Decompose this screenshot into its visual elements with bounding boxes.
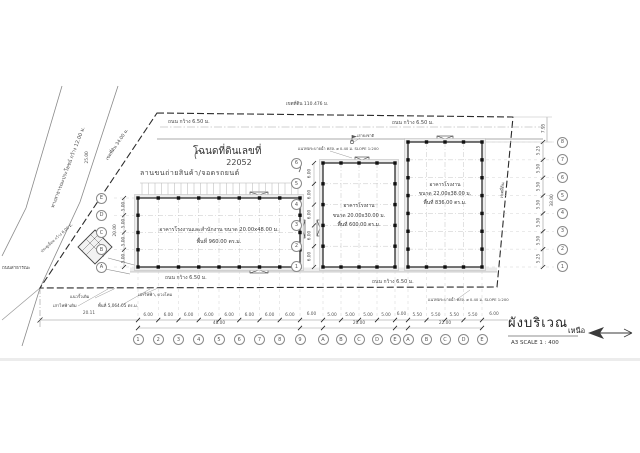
building1-line1: อาคารโรงงานและสำนักงาน ขนาด 20.00x48.00 … <box>138 226 300 234</box>
dim-label: 6.00 <box>143 313 153 318</box>
grid-bubble: D <box>96 210 107 221</box>
grid-bubbles-bottom-main: 123456789 <box>133 334 306 345</box>
lamp-posts-label: เสาไฟฟ้า, ดวงโคม <box>138 293 172 298</box>
dim-label: 6.00 <box>307 231 312 241</box>
boundary-top-label: เขตที่ดิน 110.476 ม. <box>286 103 328 108</box>
grid-bubble: 1 <box>291 261 302 272</box>
dim-label: 5.00 <box>345 313 355 318</box>
dim-label: 5.50 <box>536 164 541 174</box>
deed-title: โฉนดที่ดินเลขที่ <box>193 146 261 157</box>
site-area-label: พื้นที่ 5,064.05 ตร.ม. <box>98 304 138 309</box>
grid-bubble: E <box>390 334 401 345</box>
grid-bubble: 8 <box>274 334 285 345</box>
grid-bubble: D <box>372 334 383 345</box>
dim-label: 6.00 <box>265 313 275 318</box>
grid-bubble: A <box>96 262 107 273</box>
grid-bubble: 1 <box>133 334 144 345</box>
grid-bubble: 5 <box>214 334 225 345</box>
building3-line3: พื้นที่ 836.00 ตร.ม. <box>408 199 482 208</box>
plan-scale: A3 SCALE 1 : 400 <box>511 340 559 346</box>
grid-bubble: 6 <box>557 172 568 183</box>
grid-bubble: B <box>96 244 107 255</box>
grid-bubble: 9 <box>295 334 306 345</box>
grid-bubble: 5 <box>291 178 302 189</box>
grid-bubble: C <box>96 227 107 238</box>
dim-row-mid: 5.005.005.005.00 <box>323 313 395 318</box>
dim-b1-side-total: 20.00 <box>114 224 119 236</box>
dim-label: 5.00 <box>121 236 126 246</box>
dim-gap2: 6.00 <box>395 313 408 318</box>
road-width-label: ถนน กว้าง 6.50 ม. <box>372 280 414 286</box>
grid-bubble: 3 <box>173 334 184 345</box>
building1-line2: พื้นที่ 960.00 ตร.ม. <box>138 238 300 246</box>
dim-col-b1-left: 5.005.005.005.00 <box>119 198 127 267</box>
dim-label: 5.50 <box>536 200 541 210</box>
grid-bubbles-mid-left: 654321 <box>291 158 302 273</box>
drain-label: แนวท่อระบายน้ำ คสล. ø 0.40 ม. SLOPE 1:20… <box>298 147 379 151</box>
dim-label: 5.00 <box>381 313 391 318</box>
dim-label: 6.00 <box>307 169 312 179</box>
dim-label: 5.25 <box>536 253 541 263</box>
building2-label: อาคารโรงงาน ขนาด 20.00x30.00 ม. พื้นที่ … <box>323 202 395 231</box>
building2-line1: อาคารโรงงาน <box>323 202 395 212</box>
grid-bubble: 6 <box>234 334 245 345</box>
grid-bubble: 7 <box>254 334 265 345</box>
public-road-short-label: ถนนสาธารณะ <box>2 267 30 272</box>
road-width-label: ถนน กว้าง 6.50 ม. <box>168 120 210 126</box>
dim-label: 6.00 <box>307 210 312 220</box>
grid-bubble: 2 <box>291 241 302 252</box>
yard-label: ลานขนถ่ายสินค้า/จอดรถยนต์ <box>140 170 240 178</box>
grid-bubble: 2 <box>557 244 568 255</box>
dim-total-main: 48.00 <box>138 322 300 327</box>
dim-label: 5.00 <box>327 313 337 318</box>
fence-label: แนวรั้วเดิม <box>70 295 89 300</box>
grid-bubble: 4 <box>193 334 204 345</box>
dim-label: 5.50 <box>536 182 541 192</box>
dim-left-boundary: 25.00 <box>86 151 91 163</box>
grid-bubble: C <box>440 334 451 345</box>
grid-bubble: 3 <box>557 226 568 237</box>
grid-bubbles-bottom-right: ABCDE <box>403 334 488 345</box>
dim-label: 5.25 <box>536 146 541 156</box>
building3-label: อาคารโรงงาน ขนาด 22.00x38.00 ม. พื้นที่ … <box>408 181 482 208</box>
dim-label: 5.50 <box>536 235 541 245</box>
dim-label: 6.00 <box>224 313 234 318</box>
grid-bubbles-bottom-mid: ABCDE <box>318 334 401 345</box>
dim-right-total: 38.00 <box>551 194 556 206</box>
flag-pole-label: เสาธงชาติ <box>357 134 374 138</box>
grid-bubble: B <box>336 334 347 345</box>
north-arrow-icon <box>588 327 632 339</box>
dim-label: 6.00 <box>184 313 194 318</box>
dim-label: 6.00 <box>285 313 295 318</box>
leader-line <box>95 289 115 299</box>
drain-label: แนวท่อระบายน้ำ คสล. ø 0.40 ม. SLOPE 1:20… <box>428 298 509 302</box>
site-plan-sheet: โฉนดที่ดินเลขที่ 22052 ลานขนถ่ายสินค้า/จ… <box>0 0 640 453</box>
dim-label: 6.00 <box>307 252 312 262</box>
grid-bubble: A <box>318 334 329 345</box>
dim-label: 5.00 <box>121 219 126 229</box>
plan-title: ผังบริเวณ <box>508 317 568 331</box>
building3-line1: อาคารโรงงาน <box>408 181 482 190</box>
building2-line2: ขนาด 20.00x30.00 ม. <box>323 212 395 222</box>
grid-bubble: 3 <box>291 220 302 231</box>
grid-bubble: 4 <box>557 208 568 219</box>
dim-row-main: 6.006.006.006.006.006.006.006.00 <box>138 313 300 318</box>
dim-gap3: 6.00 <box>482 313 506 318</box>
grid-bubbles-right: 87654321 <box>557 137 568 273</box>
dim-label: 5.00 <box>121 254 126 264</box>
building3-line2: ขนาด 22.00x38.00 ม. <box>408 190 482 199</box>
dim-label: 6.00 <box>307 189 312 199</box>
dim-gap1: 6.00 <box>300 313 323 318</box>
leader-line <box>354 138 360 142</box>
dim-label: 6.00 <box>204 313 214 318</box>
dim-row-right: 5.505.505.505.50 <box>408 313 482 318</box>
grid-bubble: 2 <box>153 334 164 345</box>
road-width-label: ถนน กว้าง 6.50 ม. <box>165 276 207 282</box>
building2-line3: พื้นที่ 600.00 ตร.ม. <box>323 221 395 231</box>
deed-number: 22052 <box>193 159 285 168</box>
dim-label: 5.50 <box>431 313 441 318</box>
grid-bubbles-left-main: EDCBA <box>96 193 107 273</box>
dim-label: 5.50 <box>449 313 459 318</box>
dim-right-top: 7.95 <box>542 124 547 134</box>
power-pole-label: เสาไฟฟ้าเดิม <box>53 304 77 309</box>
leader-line <box>330 151 352 158</box>
dim-label: 5.00 <box>363 313 373 318</box>
grid-bubble: 1 <box>557 261 568 272</box>
grid-bubble: E <box>96 193 107 204</box>
dim-col-b2-left: 6.006.006.006.006.00 <box>305 163 313 267</box>
grid-bubble: 6 <box>291 158 302 169</box>
building1-label: อาคารโรงงานและสำนักงาน ขนาด 20.00x48.00 … <box>138 226 300 246</box>
grid-bubble: 4 <box>291 199 302 210</box>
north-label: เหนือ <box>568 327 585 335</box>
dim-total-right: 22.00 <box>408 322 482 327</box>
dim-label: 5.50 <box>412 313 422 318</box>
grid-bubble: C <box>354 334 365 345</box>
dim-total-mid: 20.00 <box>323 322 395 327</box>
dim-col-right: 5.255.505.505.505.505.505.25 <box>534 142 543 267</box>
dim-left-offset: 20.11 <box>40 312 138 317</box>
public-road-outer-edge <box>2 86 62 256</box>
road-fork-line <box>2 288 40 320</box>
dim-label: 5.50 <box>468 313 478 318</box>
road-width-label: ถนน กว้าง 6.50 ม. <box>392 121 434 127</box>
grid-bubble: 7 <box>557 154 568 165</box>
grid-bubble: E <box>477 334 488 345</box>
grid-bubble: A <box>403 334 414 345</box>
grid-bubble: D <box>458 334 469 345</box>
grid-bubble: B <box>421 334 432 345</box>
sheet-edge-band <box>0 358 640 361</box>
grid-bubble: 5 <box>557 190 568 201</box>
dim-label: 6.00 <box>164 313 174 318</box>
flag-pole-icon <box>350 135 357 144</box>
dim-label: 6.00 <box>245 313 255 318</box>
dim-label: 5.00 <box>121 202 126 212</box>
dim-label: 5.50 <box>536 218 541 228</box>
grid-bubble: 8 <box>557 137 568 148</box>
